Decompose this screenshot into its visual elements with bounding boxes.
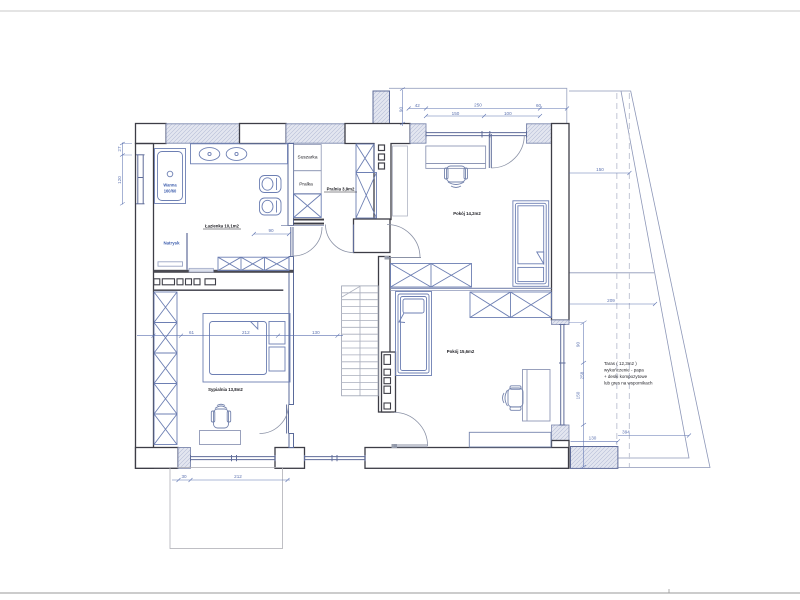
svg-text:212: 212	[234, 474, 242, 479]
svg-text:130: 130	[312, 330, 320, 335]
svg-text:150: 150	[452, 111, 460, 116]
svg-text:Sypialnia 13,8m2: Sypialnia 13,8m2	[208, 387, 243, 392]
svg-text:150: 150	[596, 167, 604, 172]
svg-text:61: 61	[189, 330, 195, 335]
svg-text:Pokój 15,6m2: Pokój 15,6m2	[447, 349, 475, 354]
svg-text:130: 130	[589, 436, 597, 441]
svg-text:Pralnia 3,9m2: Pralnia 3,9m2	[327, 187, 355, 192]
svg-text:394: 394	[622, 430, 630, 435]
svg-text:Suszarka: Suszarka	[298, 155, 318, 161]
svg-text:Łazienka 10,1m2: Łazienka 10,1m2	[205, 224, 240, 229]
svg-text:90: 90	[268, 228, 274, 233]
svg-text:lub gres na wspornikach: lub gres na wspornikach	[604, 381, 653, 386]
svg-text:Natrysk: Natrysk	[163, 241, 180, 246]
svg-text:+ deski kompozytowe: + deski kompozytowe	[604, 374, 648, 379]
svg-text:160/60: 160/60	[164, 189, 177, 194]
svg-text:27: 27	[117, 146, 122, 152]
svg-text:90: 90	[399, 107, 404, 113]
svg-text:Taras ( 12,3m2 ): Taras ( 12,3m2 )	[604, 361, 637, 366]
svg-text:Pralka: Pralka	[299, 182, 313, 188]
svg-text:90: 90	[576, 342, 581, 348]
svg-text:wykończenie - papa: wykończenie - papa	[604, 368, 644, 373]
svg-text:100: 100	[504, 111, 512, 116]
svg-text:120: 120	[117, 176, 122, 184]
svg-text:Pokój 14,2m2: Pokój 14,2m2	[453, 211, 481, 216]
svg-text:60: 60	[536, 103, 542, 108]
svg-text:212: 212	[242, 330, 250, 335]
svg-text:150: 150	[576, 391, 581, 399]
svg-text:Wanna: Wanna	[163, 183, 177, 188]
svg-text:42: 42	[415, 103, 421, 108]
svg-text:250: 250	[474, 103, 482, 108]
svg-text:209: 209	[607, 298, 615, 303]
svg-text:30: 30	[181, 474, 187, 479]
svg-text:258: 258	[580, 371, 585, 379]
